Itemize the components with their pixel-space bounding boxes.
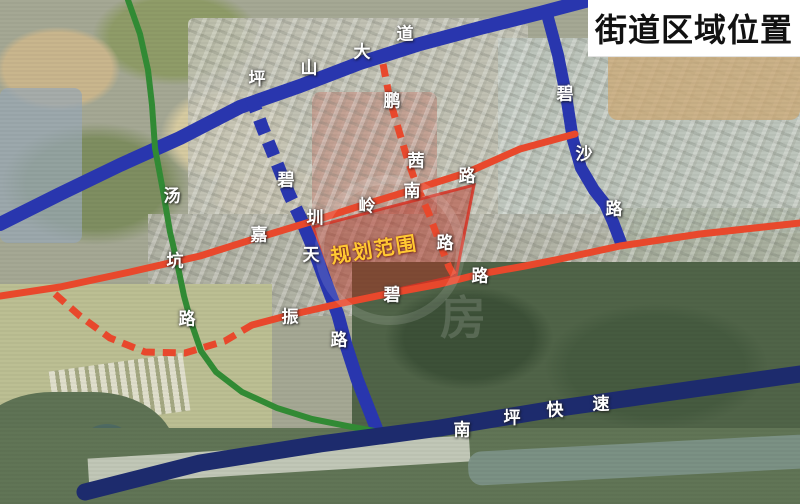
title-box: 街道区域位置 [588, 0, 800, 57]
road-pingshan-avenue [0, 0, 612, 224]
watermark-text: 房 [440, 282, 486, 348]
road-bizhen-road [251, 97, 301, 219]
page-title: 街道区域位置 [595, 5, 793, 51]
road-nanping-expressway [85, 374, 800, 492]
road-jiatian-road [0, 222, 310, 296]
road-zhenbi-road [55, 294, 252, 353]
map-container: 房 坪山大道碧沙路碧圳路汤坑路嘉天岭南路振碧路鹏茜路南坪快速规划范围 街道区域位… [0, 0, 800, 504]
